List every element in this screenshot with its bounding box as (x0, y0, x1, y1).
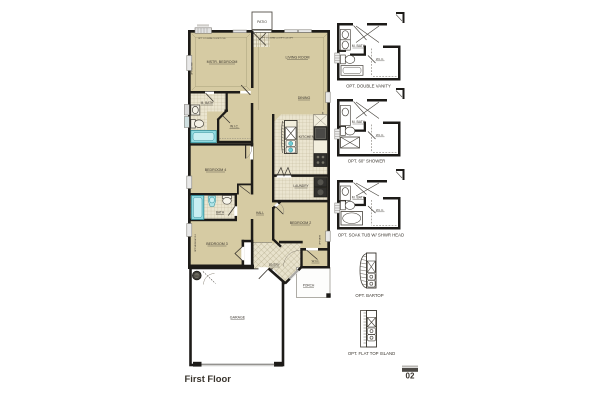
svg-text:KITCHEN: KITCHEN (299, 135, 315, 139)
svg-text:M. BATH: M. BATH (201, 101, 214, 105)
svg-text:OPT WDW RM CLG: OPT WDW RM CLG (195, 233, 197, 252)
svg-text:OPT. DOUBLE VANITY: OPT. DOUBLE VANITY (346, 84, 391, 89)
svg-text:LAUNDRY: LAUNDRY (293, 184, 309, 188)
svg-text:M. BATH: M. BATH (352, 44, 366, 48)
svg-text:GARAGE: GARAGE (230, 316, 246, 320)
svg-text:M. BATH: M. BATH (352, 196, 366, 200)
svg-text:First Floor: First Floor (185, 373, 232, 384)
svg-text:OPT. BARTOP: OPT. BARTOP (355, 293, 383, 298)
svg-text:MSTR. BEDROOM: MSTR. BEDROOM (207, 60, 238, 64)
svg-text:BEDROOM 3: BEDROOM 3 (206, 242, 228, 246)
svg-text:W.I.C.: W.I.C. (230, 125, 239, 129)
svg-text:02: 02 (406, 372, 415, 381)
svg-text:W.I.C.: W.I.C. (312, 259, 320, 263)
svg-text:OPT. 60" SHOWER: OPT. 60" SHOWER (348, 159, 386, 164)
svg-text:HALL: HALL (256, 211, 264, 215)
svg-text:DINING: DINING (298, 96, 311, 100)
svg-text:BEDROOM 2: BEDROOM 2 (290, 221, 312, 225)
svg-text:BEDROOM 4: BEDROOM 4 (205, 168, 227, 172)
svg-text:PORCH: PORCH (303, 284, 315, 288)
svg-text:WH: WH (195, 274, 199, 278)
svg-text:OPT. FLAT TOP ISLAND: OPT. FLAT TOP ISLAND (348, 351, 395, 356)
svg-text:OPT 1 CLG/RM CLG 9FT CLG OPT: OPT 1 CLG/RM CLG 9FT CLG OPT (261, 38, 294, 40)
svg-text:LIVING ROOM: LIVING ROOM (286, 56, 310, 60)
svg-text:OPT WDW: OPT WDW (320, 235, 322, 245)
svg-text:W.I.C.: W.I.C. (376, 57, 384, 61)
svg-text:ENTRY: ENTRY (269, 263, 281, 267)
svg-text:PATIO: PATIO (257, 20, 267, 24)
svg-text:OPT CLG RM: OPT CLG RM (192, 62, 194, 75)
svg-text:M. BATH: M. BATH (352, 120, 366, 124)
svg-text:W.I.C.: W.I.C. (376, 133, 384, 137)
svg-text:OPT. SOAK TUB W/ SHWR HEAD: OPT. SOAK TUB W/ SHWR HEAD (338, 233, 404, 238)
svg-text:BATH: BATH (216, 211, 225, 215)
svg-text:OPT 1 CLG/RM CLG 9FT CLG: OPT 1 CLG/RM CLG 9FT CLG (198, 38, 226, 40)
svg-text:W.I.C.: W.I.C. (376, 208, 384, 212)
